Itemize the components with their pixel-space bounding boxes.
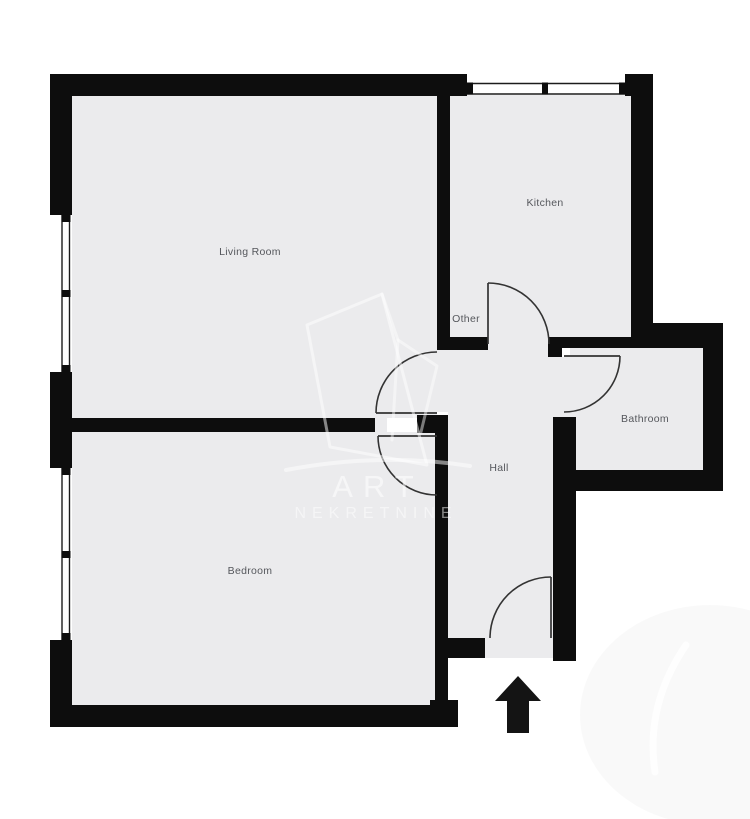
wall-bedroom-corner	[430, 700, 458, 727]
room-label-kitchen: Kitchen	[526, 197, 563, 209]
wall-left-middle	[50, 372, 72, 468]
wall-right	[703, 348, 723, 490]
kitchen-window-tick	[467, 83, 473, 95]
floor-kitchen	[450, 95, 633, 337]
floor-livingroom-doorway	[437, 350, 448, 412]
floor-bathroom-doorway	[554, 357, 570, 417]
wall-bathroom-bottom	[562, 470, 723, 491]
bedroom-window-tick	[62, 551, 71, 558]
bedroom-window-tick	[62, 633, 71, 640]
living-room-window-tick	[62, 290, 71, 297]
wall-living-kitchen-divider	[437, 92, 450, 345]
wall-door-pier	[417, 415, 448, 433]
kitchen-window-tick	[542, 83, 548, 95]
room-label-bathroom: Bathroom	[621, 413, 669, 425]
watermark-shade	[580, 605, 750, 819]
wall-hall-left	[435, 433, 448, 700]
room-label-other: Other	[452, 313, 480, 325]
bedroom-window-tick	[62, 468, 71, 475]
wall-living-bedroom	[72, 418, 375, 432]
wall-hall-right	[553, 417, 576, 661]
wall-other-bottom	[437, 337, 488, 350]
room-label-living-room: Living Room	[219, 246, 281, 258]
wall-kitchen-bathroom	[560, 337, 653, 348]
living-room-window-tick	[62, 365, 71, 372]
floor-bathroom	[570, 348, 703, 470]
watermark-logo-stroke-4	[653, 645, 686, 772]
living-room-window-tick	[62, 215, 71, 222]
entrance-arrow-icon	[495, 676, 541, 733]
room-label-hall: Hall	[489, 462, 508, 474]
room-label-bedroom: Bedroom	[228, 565, 273, 577]
wall-bottom	[50, 705, 458, 727]
wall-kitchen-right	[631, 96, 653, 337]
wall-top-right-block	[625, 74, 653, 96]
floor-wall-gap	[375, 415, 387, 433]
wall-left-upper	[50, 74, 72, 215]
wall-bathroom-door-pier	[548, 337, 562, 357]
wall-bath-top-exterior	[653, 323, 723, 348]
wall-hall-step-left	[448, 638, 485, 658]
floor-plan: ARTNEKRETNINELiving RoomKitchenOtherBath…	[0, 0, 750, 819]
floor-entry-recess	[485, 638, 553, 658]
wall-top	[50, 74, 467, 96]
floor-hall	[448, 337, 554, 638]
